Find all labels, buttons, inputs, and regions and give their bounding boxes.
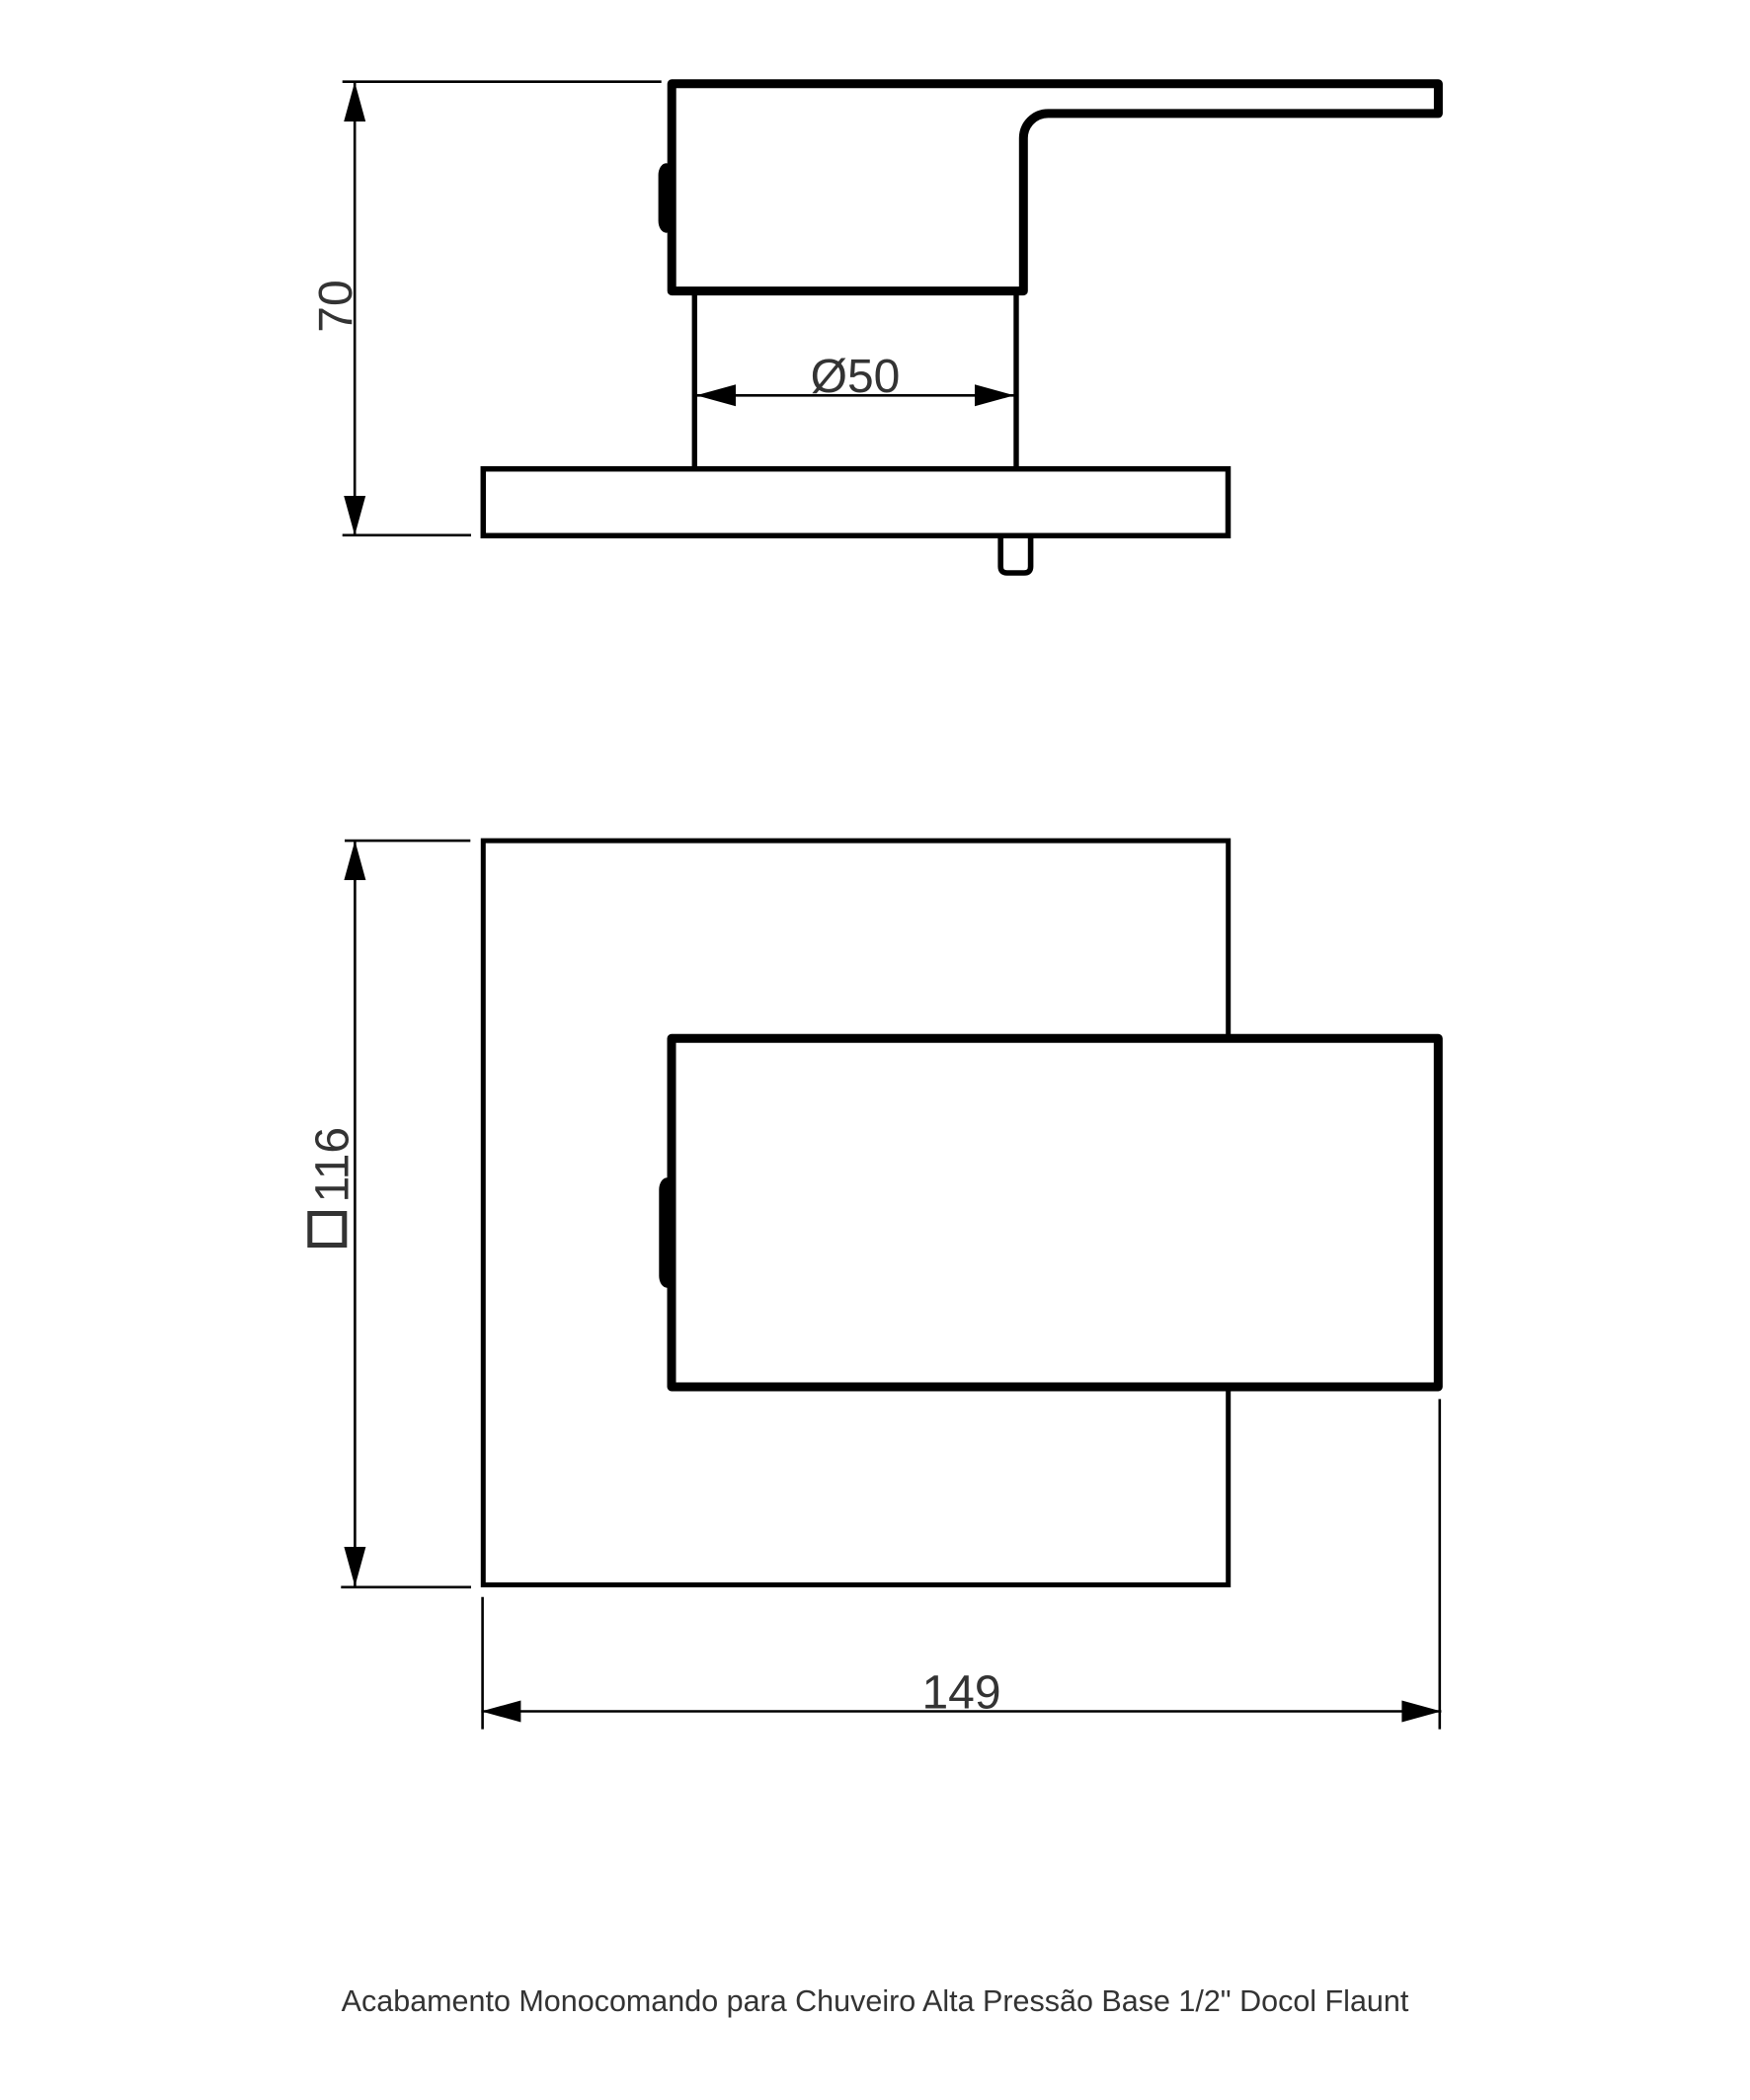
- svg-text:149: 149: [921, 1667, 1000, 1720]
- svg-text:70: 70: [310, 280, 362, 332]
- svg-text:Acabamento Monocomando para Ch: Acabamento Monocomando para Chuveiro Alt…: [342, 1984, 1409, 2018]
- svg-text:116: 116: [306, 1127, 358, 1203]
- svg-text:Ø50: Ø50: [811, 351, 901, 403]
